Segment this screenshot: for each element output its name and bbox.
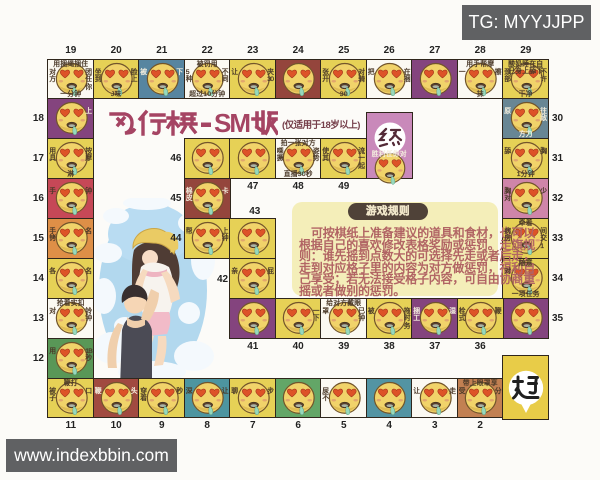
- svg-text:SM: SM: [214, 108, 251, 138]
